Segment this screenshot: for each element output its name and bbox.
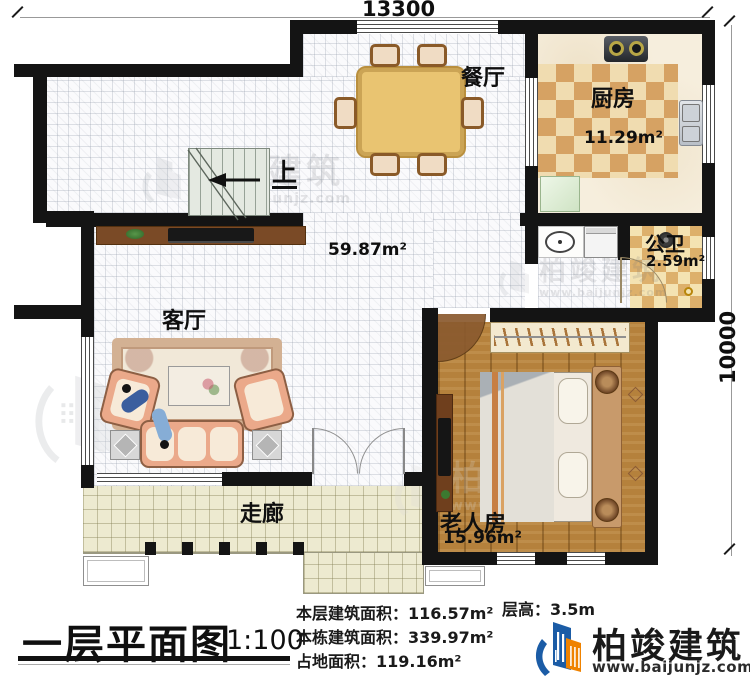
wall-stub-left (14, 305, 94, 319)
stat-building-area: 本栋建筑面积：339.97m² (296, 626, 493, 650)
wall-top-main (290, 20, 715, 34)
washing-machine-panel (586, 228, 616, 234)
wall-top-left (14, 64, 303, 77)
wall-bedroom-bottom (422, 552, 658, 565)
dimension-line-right (731, 25, 732, 556)
porch-step (83, 556, 149, 586)
dining-table (356, 66, 466, 158)
window-bedroom-bottom-2 (567, 552, 605, 565)
person-head (160, 440, 169, 449)
title-underline-thin (18, 664, 290, 665)
stat-value: 116.57m² (408, 604, 493, 623)
wall-bedroom-right (645, 322, 658, 565)
pillow (558, 452, 588, 498)
dimension-top-label: 13300 (362, 0, 435, 21)
stat-value: 339.97m² (408, 628, 493, 647)
porch-post (219, 542, 230, 555)
stove-burner-icon (609, 41, 624, 56)
dining-chair (334, 97, 357, 129)
brand-logo-icon (533, 620, 587, 680)
dining-chair (461, 97, 484, 129)
stat-label: 占地面积： (296, 652, 376, 671)
dining-chair (417, 44, 447, 67)
dining-chair (417, 153, 447, 176)
stat-storey-height: 层高：3.5m (502, 596, 595, 620)
sink-basin (682, 104, 700, 122)
floorplan-canvas: 柏竣建筑 www.baijunjz.com 柏竣建筑 www.baijunjz.… (0, 0, 750, 688)
dimension-tick (723, 543, 735, 555)
room-label-kitchen: 厨房 (591, 81, 635, 113)
page-title: 一层平面图 (22, 612, 232, 670)
stat-value: 119.16m² (376, 652, 461, 671)
coffee-table (168, 366, 230, 406)
room-area-bedroom: 15.96m² (443, 528, 522, 548)
floor-drain-icon (684, 287, 693, 296)
porch-step (425, 566, 485, 586)
window-bedroom-bottom-1 (497, 552, 535, 565)
porch-post (256, 542, 267, 555)
wardrobe-rod (494, 336, 626, 338)
stairs-up-label: 上 (272, 160, 297, 189)
porch-post (182, 542, 193, 555)
wall-bath-divider (618, 226, 630, 260)
fridge-icon (540, 176, 580, 212)
sink-basin (682, 126, 700, 142)
wall-bathhall-west (525, 226, 538, 264)
bed-stripe (492, 372, 498, 522)
stat-footprint: 占地面积：119.16m² (296, 650, 493, 674)
wall-bedroom-top (490, 308, 715, 322)
wall-kitchen-west-top (525, 34, 538, 78)
stat-label: 层高： (502, 600, 550, 619)
brand-url: www.baijunjz.com (592, 658, 750, 676)
porch-post (293, 542, 304, 555)
wall-living-bottom-right (404, 472, 434, 486)
plant-icon (126, 229, 144, 239)
stat-value: 3.5m (550, 600, 595, 619)
window-dining-top (357, 20, 498, 34)
headboard-carving-icon (595, 498, 619, 522)
floor-passage (433, 213, 525, 308)
room-area-kitchen: 11.29m² (584, 128, 663, 148)
room-label-dining: 餐厅 (461, 60, 505, 92)
tv-icon (168, 228, 254, 243)
room-label-living: 客厅 (162, 303, 206, 335)
dimension-right-label: 10000 (716, 311, 740, 384)
door-leaf (620, 258, 622, 303)
dimension-tick (723, 15, 735, 27)
window-living-left (81, 337, 94, 465)
wall-left-upper (33, 64, 47, 223)
stat-label: 本栋建筑面积： (296, 628, 408, 647)
sofa-cushion (210, 427, 238, 461)
stats-block: 本层建筑面积：116.57m² 本栋建筑面积：339.97m² 占地面积：119… (296, 602, 493, 674)
person-head (122, 384, 131, 393)
stat-floor-area: 本层建筑面积：116.57m² (296, 602, 493, 626)
plant-icon (441, 490, 450, 499)
stove-burner-icon (629, 41, 644, 56)
wall-living-bottom-mid (222, 472, 312, 486)
floor-corridor-ext (303, 552, 424, 594)
room-area-bathroom: 2.59m² (646, 252, 705, 270)
wall-kitchen-bottom (520, 213, 715, 226)
dining-chair (370, 44, 400, 67)
monitor-icon (438, 418, 451, 476)
door-kitchen-slide (525, 78, 538, 166)
title-underline (18, 656, 290, 661)
window-kitchen-right (702, 85, 715, 163)
room-area-hall: 59.87m² (328, 240, 407, 260)
pillow (558, 378, 588, 424)
room-label-corridor: 走廊 (240, 496, 284, 528)
sofa-cushion (178, 427, 206, 461)
porch-post (145, 542, 156, 555)
dining-chair (370, 153, 400, 176)
stat-label: 本层建筑面积： (296, 604, 408, 623)
bed-stripe (501, 372, 504, 522)
window-living-bottom (97, 473, 222, 485)
page-title-scale: 1:100 (226, 625, 304, 656)
headboard-carving-icon (595, 370, 619, 394)
faucet-dot (558, 240, 562, 244)
